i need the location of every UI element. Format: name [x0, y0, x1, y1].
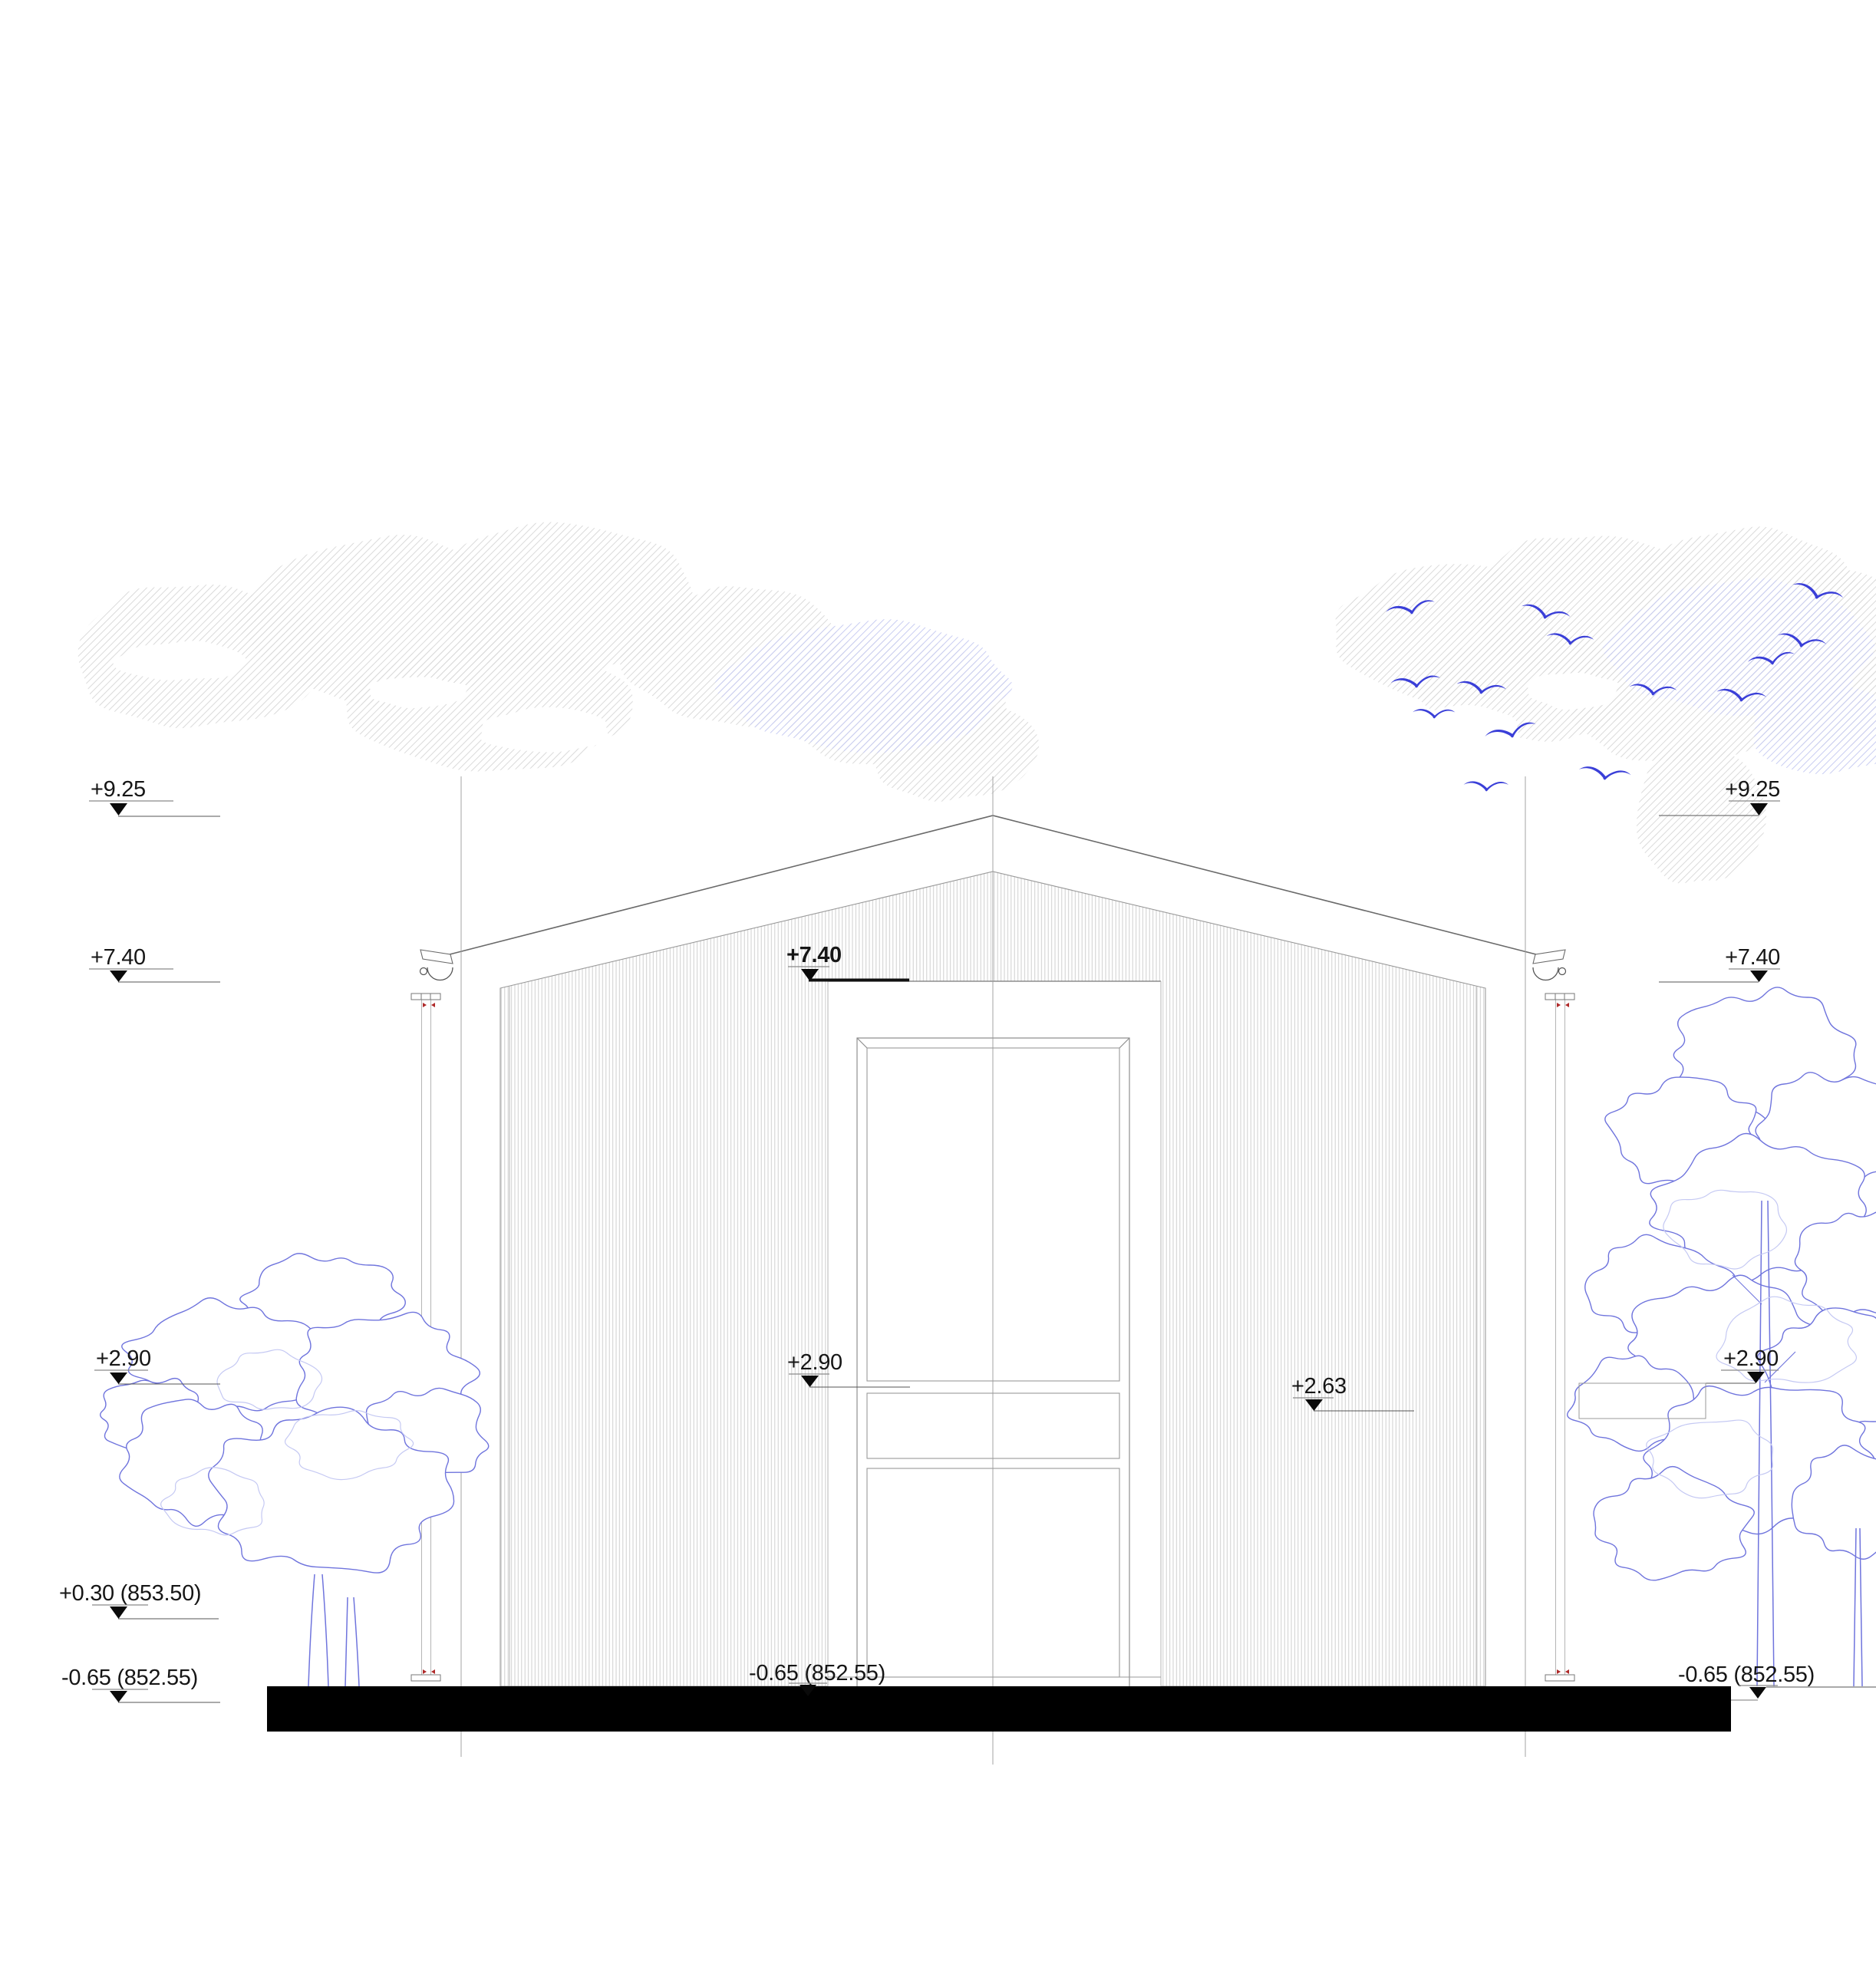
- gutter-right-icon: [1533, 967, 1566, 980]
- bird-icon: [1578, 765, 1632, 783]
- blob-shape: [1637, 738, 1766, 884]
- elevation-drawing: +9.25 +7.40 +2.90 +0.30 (853.50) -0.65 (…: [0, 0, 1876, 1964]
- tree-right: [1568, 987, 1876, 1580]
- level-marker-right-7-40: +7.40: [1659, 945, 1780, 982]
- pipe-bracket-bottom-left: [411, 1675, 440, 1681]
- level-marker-left-9-25: +9.25: [89, 777, 220, 816]
- fascia-left: [420, 950, 453, 964]
- level-label: +2.63: [1291, 1374, 1347, 1399]
- tree-left-trunk: [308, 1574, 359, 1686]
- red-mark: [423, 1669, 435, 1674]
- bird-icon: [1463, 780, 1508, 792]
- level-label: +7.40: [91, 945, 146, 970]
- level-label: -0.65 (852.55): [61, 1666, 198, 1690]
- level-label: +2.90: [787, 1350, 842, 1375]
- level-label: +2.90: [96, 1346, 151, 1371]
- pipe-bracket-top-left: [411, 994, 440, 1000]
- entrance-door: [828, 981, 1161, 1686]
- level-label: +9.25: [91, 777, 146, 802]
- level-label: -0.65 (852.55): [749, 1661, 885, 1686]
- level-label: +9.25: [1725, 777, 1780, 802]
- ground: [267, 1686, 1876, 1732]
- red-mark: [1557, 1669, 1569, 1674]
- level-label: -0.65 (852.55): [1678, 1662, 1815, 1687]
- level-label: +7.40: [1725, 945, 1780, 970]
- pipe-bracket-bottom-right: [1545, 1675, 1574, 1681]
- level-label: +2.90: [1723, 1346, 1779, 1371]
- pipe-bracket-top-right: [1545, 994, 1574, 1000]
- red-mark: [423, 1003, 435, 1007]
- level-label: +0.30 (853.50): [59, 1581, 201, 1606]
- door-opening: [828, 981, 1161, 1686]
- level-marker-left-7-40: +7.40: [89, 945, 220, 982]
- red-mark: [1557, 1003, 1569, 1007]
- tree-left: [101, 1254, 489, 1573]
- ground-slab: [267, 1686, 1731, 1732]
- gutter-left-icon: [420, 967, 453, 980]
- blob-shape: [1795, 1211, 1876, 1316]
- level-marker-left-minus-0-65: -0.65 (852.55): [61, 1666, 220, 1702]
- downpipe-right: [1545, 994, 1574, 1681]
- fascia-right: [1533, 950, 1565, 964]
- level-marker-left-0-30: +0.30 (853.50): [59, 1581, 219, 1619]
- level-label: +7.40: [786, 943, 842, 967]
